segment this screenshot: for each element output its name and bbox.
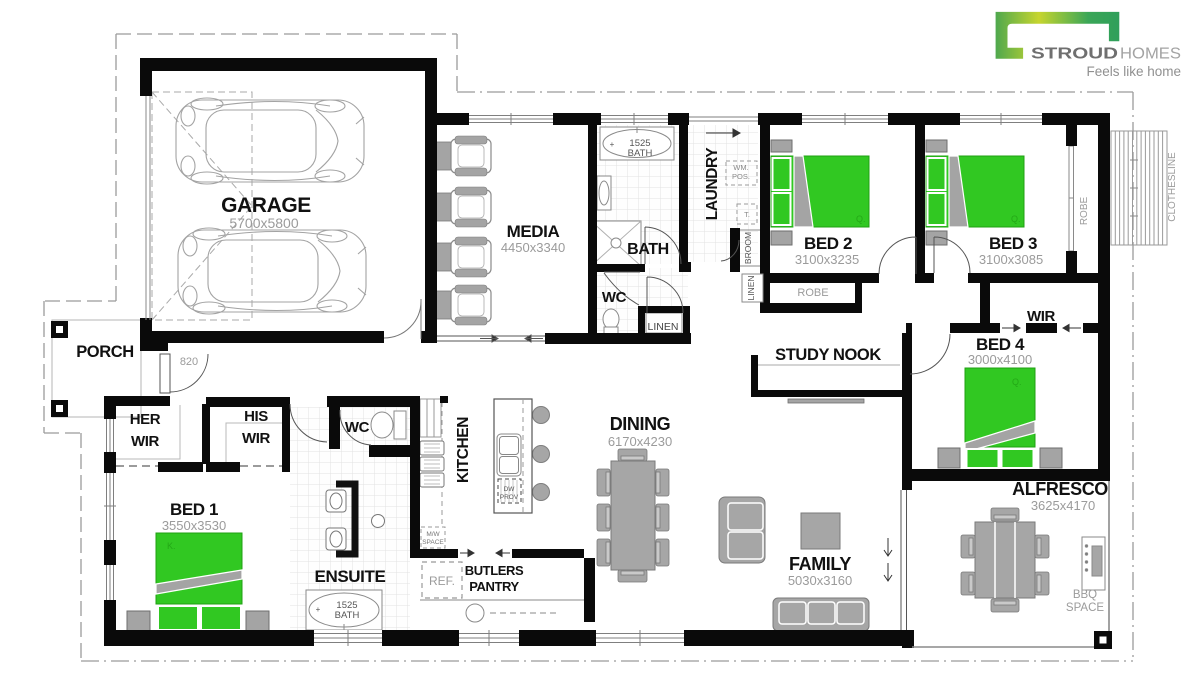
svg-text:SPACE: SPACE xyxy=(1066,602,1104,614)
svg-text:3625x4170: 3625x4170 xyxy=(1031,498,1095,513)
svg-text:WIR: WIR xyxy=(131,433,160,450)
svg-text:WC: WC xyxy=(345,419,370,436)
svg-text:+: + xyxy=(610,140,615,149)
svg-text:DW: DW xyxy=(504,486,516,493)
svg-text:ALFRESCO: ALFRESCO xyxy=(1012,479,1108,499)
svg-text:4450x3340: 4450x3340 xyxy=(501,240,565,255)
svg-text:BROOM: BROOM xyxy=(743,232,753,264)
svg-text:BBQ: BBQ xyxy=(1073,589,1097,601)
svg-text:SPACE: SPACE xyxy=(422,539,444,546)
svg-text:BED 2: BED 2 xyxy=(804,234,852,253)
svg-text:Q.: Q. xyxy=(856,214,866,224)
svg-text:STROUD: STROUD xyxy=(1031,46,1118,63)
svg-text:LINEN: LINEN xyxy=(648,321,679,333)
svg-text:Q.: Q. xyxy=(1011,214,1021,224)
svg-text:3550x3530: 3550x3530 xyxy=(162,518,226,533)
svg-text:3100x3085: 3100x3085 xyxy=(979,252,1043,267)
svg-text:ENSUITE: ENSUITE xyxy=(315,567,386,586)
svg-text:ROBE: ROBE xyxy=(1079,197,1090,226)
svg-text:WIR: WIR xyxy=(1027,308,1056,325)
svg-text:BATH: BATH xyxy=(628,148,653,159)
svg-text:HIS: HIS xyxy=(244,408,268,425)
svg-text:BED 3: BED 3 xyxy=(989,234,1037,253)
svg-text:WIR: WIR xyxy=(242,430,271,447)
svg-text:BUTLERS: BUTLERS xyxy=(465,563,524,578)
svg-text:STUDY NOOK: STUDY NOOK xyxy=(775,346,881,364)
svg-text:LAUNDRY: LAUNDRY xyxy=(704,147,721,220)
svg-text:MEDIA: MEDIA xyxy=(507,222,560,241)
svg-text:BATH: BATH xyxy=(627,241,669,258)
svg-text:ROBE: ROBE xyxy=(797,287,828,299)
svg-text:KITCHEN: KITCHEN xyxy=(455,417,472,483)
svg-text:5030x3160: 5030x3160 xyxy=(788,573,852,588)
svg-text:REF.: REF. xyxy=(429,574,455,588)
svg-text:FAMILY: FAMILY xyxy=(789,554,851,574)
svg-text:DINING: DINING xyxy=(610,414,671,434)
svg-text:Feels like home: Feels like home xyxy=(1086,64,1181,79)
svg-text:K.: K. xyxy=(167,541,176,551)
svg-text:WM.: WM. xyxy=(733,163,748,172)
svg-text:PROV: PROV xyxy=(500,494,519,501)
svg-text:5700x5800: 5700x5800 xyxy=(229,215,299,231)
svg-text:HOMES: HOMES xyxy=(1120,46,1181,63)
svg-text:POS.: POS. xyxy=(732,172,750,181)
svg-text:6170x4230: 6170x4230 xyxy=(608,434,672,449)
svg-text:Q.: Q. xyxy=(1012,377,1022,387)
svg-text:BATH: BATH xyxy=(335,610,360,621)
svg-text:820: 820 xyxy=(180,356,198,368)
svg-text:3000x4100: 3000x4100 xyxy=(968,352,1032,367)
svg-text:PANTRY: PANTRY xyxy=(469,579,519,594)
svg-text:GARAGE: GARAGE xyxy=(221,194,311,217)
svg-text:+: + xyxy=(316,605,321,614)
svg-text:3100x3235: 3100x3235 xyxy=(795,252,859,267)
svg-text:PORCH: PORCH xyxy=(76,343,134,361)
svg-text:WC: WC xyxy=(602,289,627,306)
svg-text:M/W: M/W xyxy=(426,531,440,538)
svg-text:BED 1: BED 1 xyxy=(170,500,218,519)
svg-text:LINEN: LINEN xyxy=(746,275,756,300)
svg-text:CLOTHESLINE: CLOTHESLINE xyxy=(1167,152,1178,222)
svg-text:HER: HER xyxy=(130,411,161,428)
svg-text:T.: T. xyxy=(744,210,750,219)
